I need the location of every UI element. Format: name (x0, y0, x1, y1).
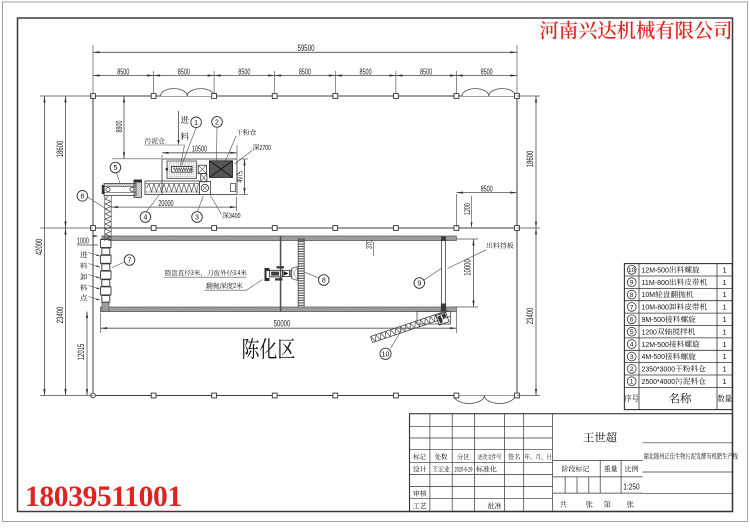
svg-text:1200: 1200 (642, 327, 657, 336)
svg-text:1: 1 (723, 352, 727, 361)
svg-text:3.4: 3.4 (233, 270, 240, 277)
svg-text:50000: 50000 (274, 318, 291, 328)
svg-text:3400: 3400 (229, 211, 241, 220)
svg-text:9: 9 (417, 281, 421, 288)
svg-text:8500: 8500 (420, 68, 432, 77)
svg-text:1: 1 (723, 290, 727, 299)
svg-text:20000: 20000 (158, 199, 173, 208)
svg-text:2700: 2700 (260, 143, 272, 152)
svg-text:8500: 8500 (178, 68, 190, 77)
svg-text:10: 10 (628, 267, 636, 274)
svg-text:10000: 10000 (463, 259, 473, 276)
svg-text:2500*4000: 2500*4000 (642, 377, 676, 386)
svg-text:1:250: 1:250 (623, 483, 640, 492)
svg-text:3: 3 (630, 354, 634, 361)
svg-text:18600: 18600 (525, 151, 535, 168)
svg-text:2: 2 (630, 366, 634, 373)
svg-text:2: 2 (215, 119, 219, 126)
svg-text:8500: 8500 (360, 68, 372, 77)
svg-text:1: 1 (630, 379, 634, 386)
svg-text:1: 1 (723, 303, 727, 312)
svg-text:12015: 12015 (76, 344, 86, 361)
svg-text:1200: 1200 (463, 203, 472, 215)
svg-text:1: 1 (723, 327, 727, 336)
svg-text:42000: 42000 (34, 239, 44, 256)
svg-text:10M-800: 10M-800 (642, 303, 669, 312)
svg-text:8500: 8500 (238, 68, 250, 77)
svg-text:3: 3 (191, 270, 194, 277)
svg-text:18600: 18600 (55, 141, 65, 158)
svg-text:370: 370 (365, 240, 374, 249)
svg-text:10500: 10500 (192, 145, 207, 154)
svg-text:8500: 8500 (299, 68, 311, 77)
svg-text:4975: 4975 (235, 171, 244, 183)
svg-text:8500: 8500 (481, 184, 493, 193)
svg-text:23400: 23400 (55, 307, 65, 324)
svg-text:1: 1 (723, 340, 727, 349)
svg-text:1: 1 (723, 315, 727, 324)
svg-text:1: 1 (723, 266, 727, 275)
svg-text:12M-500: 12M-500 (642, 266, 669, 275)
svg-text:8800: 8800 (115, 120, 124, 132)
svg-text:7: 7 (128, 258, 132, 265)
svg-text:6: 6 (80, 193, 84, 200)
svg-text:4: 4 (143, 215, 147, 222)
svg-text:5: 5 (113, 165, 117, 172)
svg-text:23400: 23400 (525, 308, 535, 325)
svg-text:8500: 8500 (117, 68, 129, 77)
svg-text:5: 5 (630, 329, 634, 336)
svg-text:7: 7 (630, 304, 634, 311)
svg-text:1: 1 (194, 120, 198, 127)
svg-text:2350*3000: 2350*3000 (642, 365, 676, 374)
svg-text:9M-500: 9M-500 (642, 315, 666, 324)
svg-text:6: 6 (630, 317, 634, 324)
svg-text:59500: 59500 (298, 43, 315, 53)
svg-text:10: 10 (382, 351, 390, 358)
svg-text:2020-6-29: 2020-6-29 (454, 467, 472, 474)
svg-text:9: 9 (630, 280, 634, 287)
svg-text:10M: 10M (642, 290, 656, 299)
svg-text:8: 8 (322, 278, 326, 285)
svg-text:12M-500: 12M-500 (642, 340, 669, 349)
svg-text:4M-500: 4M-500 (642, 352, 666, 361)
svg-text:8: 8 (630, 292, 634, 299)
svg-text:18039511001: 18039511001 (25, 481, 182, 513)
svg-text:1000: 1000 (77, 237, 89, 246)
svg-text:1: 1 (723, 377, 727, 386)
svg-text:4: 4 (630, 342, 634, 349)
svg-text:1: 1 (723, 365, 727, 374)
svg-text:2: 2 (233, 283, 236, 290)
svg-text:1: 1 (723, 278, 727, 287)
svg-text:11M-800: 11M-800 (642, 278, 669, 287)
svg-text:8500: 8500 (481, 68, 493, 77)
svg-text:3: 3 (195, 215, 199, 222)
